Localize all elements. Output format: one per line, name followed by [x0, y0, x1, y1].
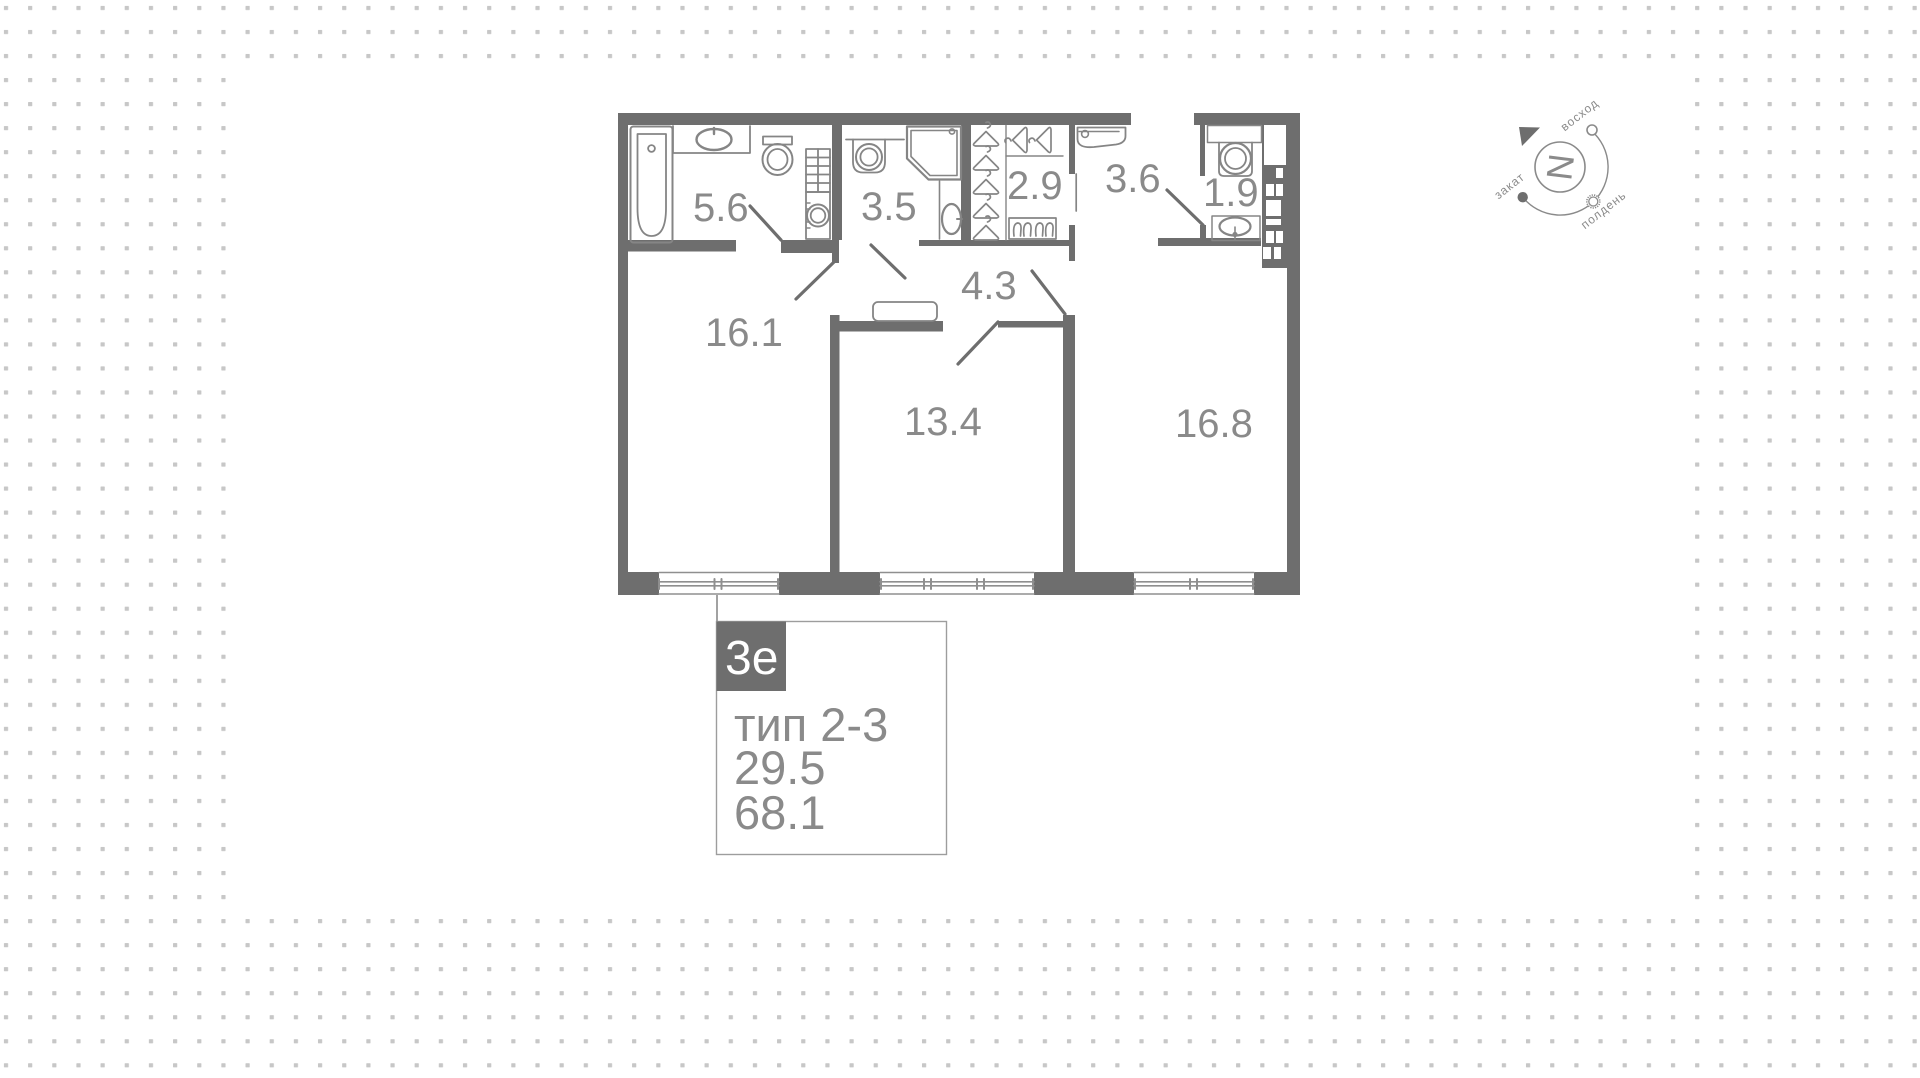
svg-text:16.1: 16.1 [705, 311, 783, 355]
svg-text:13.4: 13.4 [904, 400, 982, 444]
svg-text:3.6: 3.6 [1105, 157, 1161, 201]
svg-text:1.9: 1.9 [1203, 171, 1259, 215]
svg-text:4.3: 4.3 [961, 264, 1017, 308]
svg-text:N: N [1539, 152, 1583, 183]
svg-text:5.6: 5.6 [693, 186, 749, 230]
svg-text:3.5: 3.5 [861, 185, 917, 229]
svg-text:2.9: 2.9 [1007, 164, 1063, 208]
svg-text:3е: 3е [725, 632, 778, 685]
svg-text:68.1: 68.1 [734, 786, 825, 839]
svg-text:16.8: 16.8 [1175, 402, 1253, 446]
